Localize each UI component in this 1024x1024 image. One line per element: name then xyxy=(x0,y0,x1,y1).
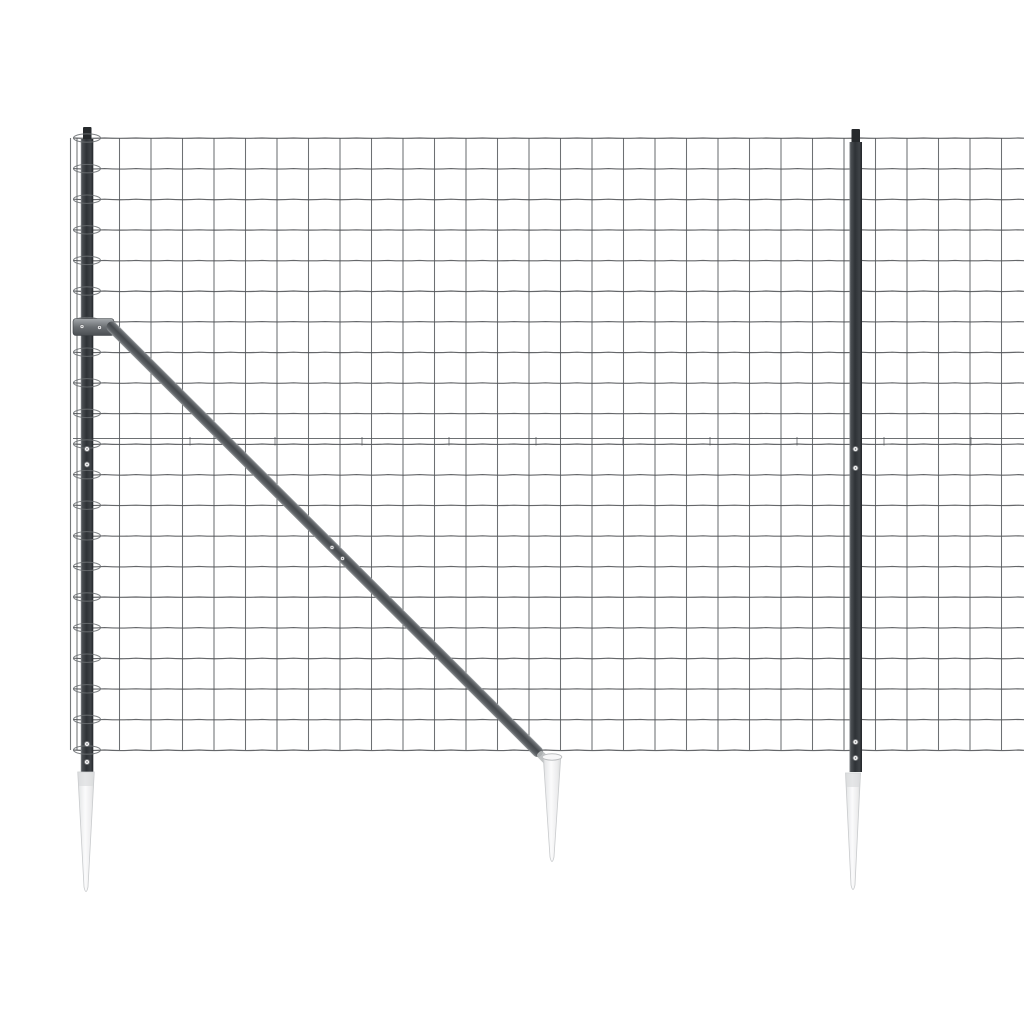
wire-mesh xyxy=(71,138,1024,751)
post-screw-pin xyxy=(86,761,87,762)
brace-screw-pin xyxy=(342,558,343,559)
diagonal-support-brace xyxy=(104,319,552,766)
spike-cone xyxy=(543,757,561,862)
brace-screw-pin xyxy=(331,547,332,548)
post-screw-pin xyxy=(855,467,856,468)
post-screw-pin xyxy=(855,757,856,758)
spike-cone xyxy=(78,772,95,892)
right-ground-spike xyxy=(846,773,861,890)
right-post-body xyxy=(850,142,863,772)
left-ground-spike xyxy=(78,772,95,892)
post-screw-pin xyxy=(855,741,856,742)
clamp-screw-pin xyxy=(99,327,100,328)
post-screw-pin xyxy=(86,448,87,449)
product-photo-wire-mesh-fence xyxy=(0,0,1024,1024)
post-screw-pin xyxy=(855,448,856,449)
mesh-horizontal-wires xyxy=(73,138,1024,751)
clamp-screw-pin xyxy=(81,326,82,327)
spike-collar xyxy=(846,773,861,787)
right-post-cap xyxy=(852,129,861,143)
spike-cone xyxy=(846,773,861,890)
brace-bar xyxy=(104,319,545,759)
post-screw-pin xyxy=(86,464,87,465)
fence-illustration xyxy=(0,0,1024,1024)
spike-collar xyxy=(78,772,95,786)
middle-ground-spike xyxy=(542,754,562,862)
post-screw-pin xyxy=(86,743,87,744)
spike-socket-rim xyxy=(542,754,562,760)
post-screws xyxy=(84,446,858,764)
